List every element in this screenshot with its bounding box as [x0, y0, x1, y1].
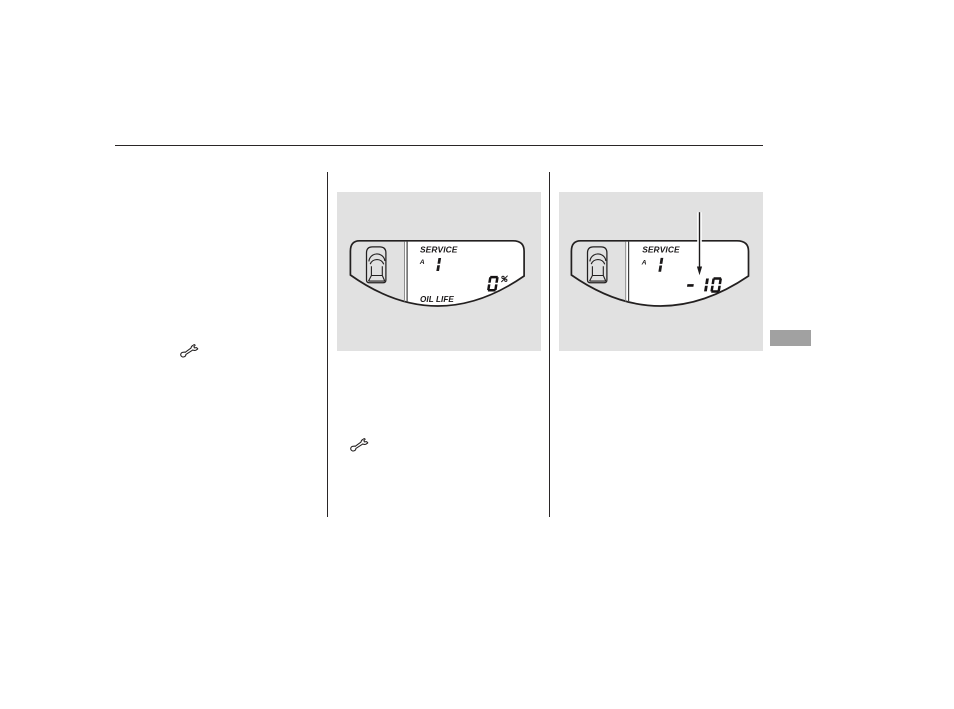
svg-text:A: A [641, 260, 647, 267]
svg-text:OIL LIFE: OIL LIFE [420, 295, 454, 304]
svg-text:A: A [419, 259, 425, 266]
svg-text:SERVICE: SERVICE [642, 245, 680, 255]
svg-text:SERVICE: SERVICE [420, 244, 458, 254]
